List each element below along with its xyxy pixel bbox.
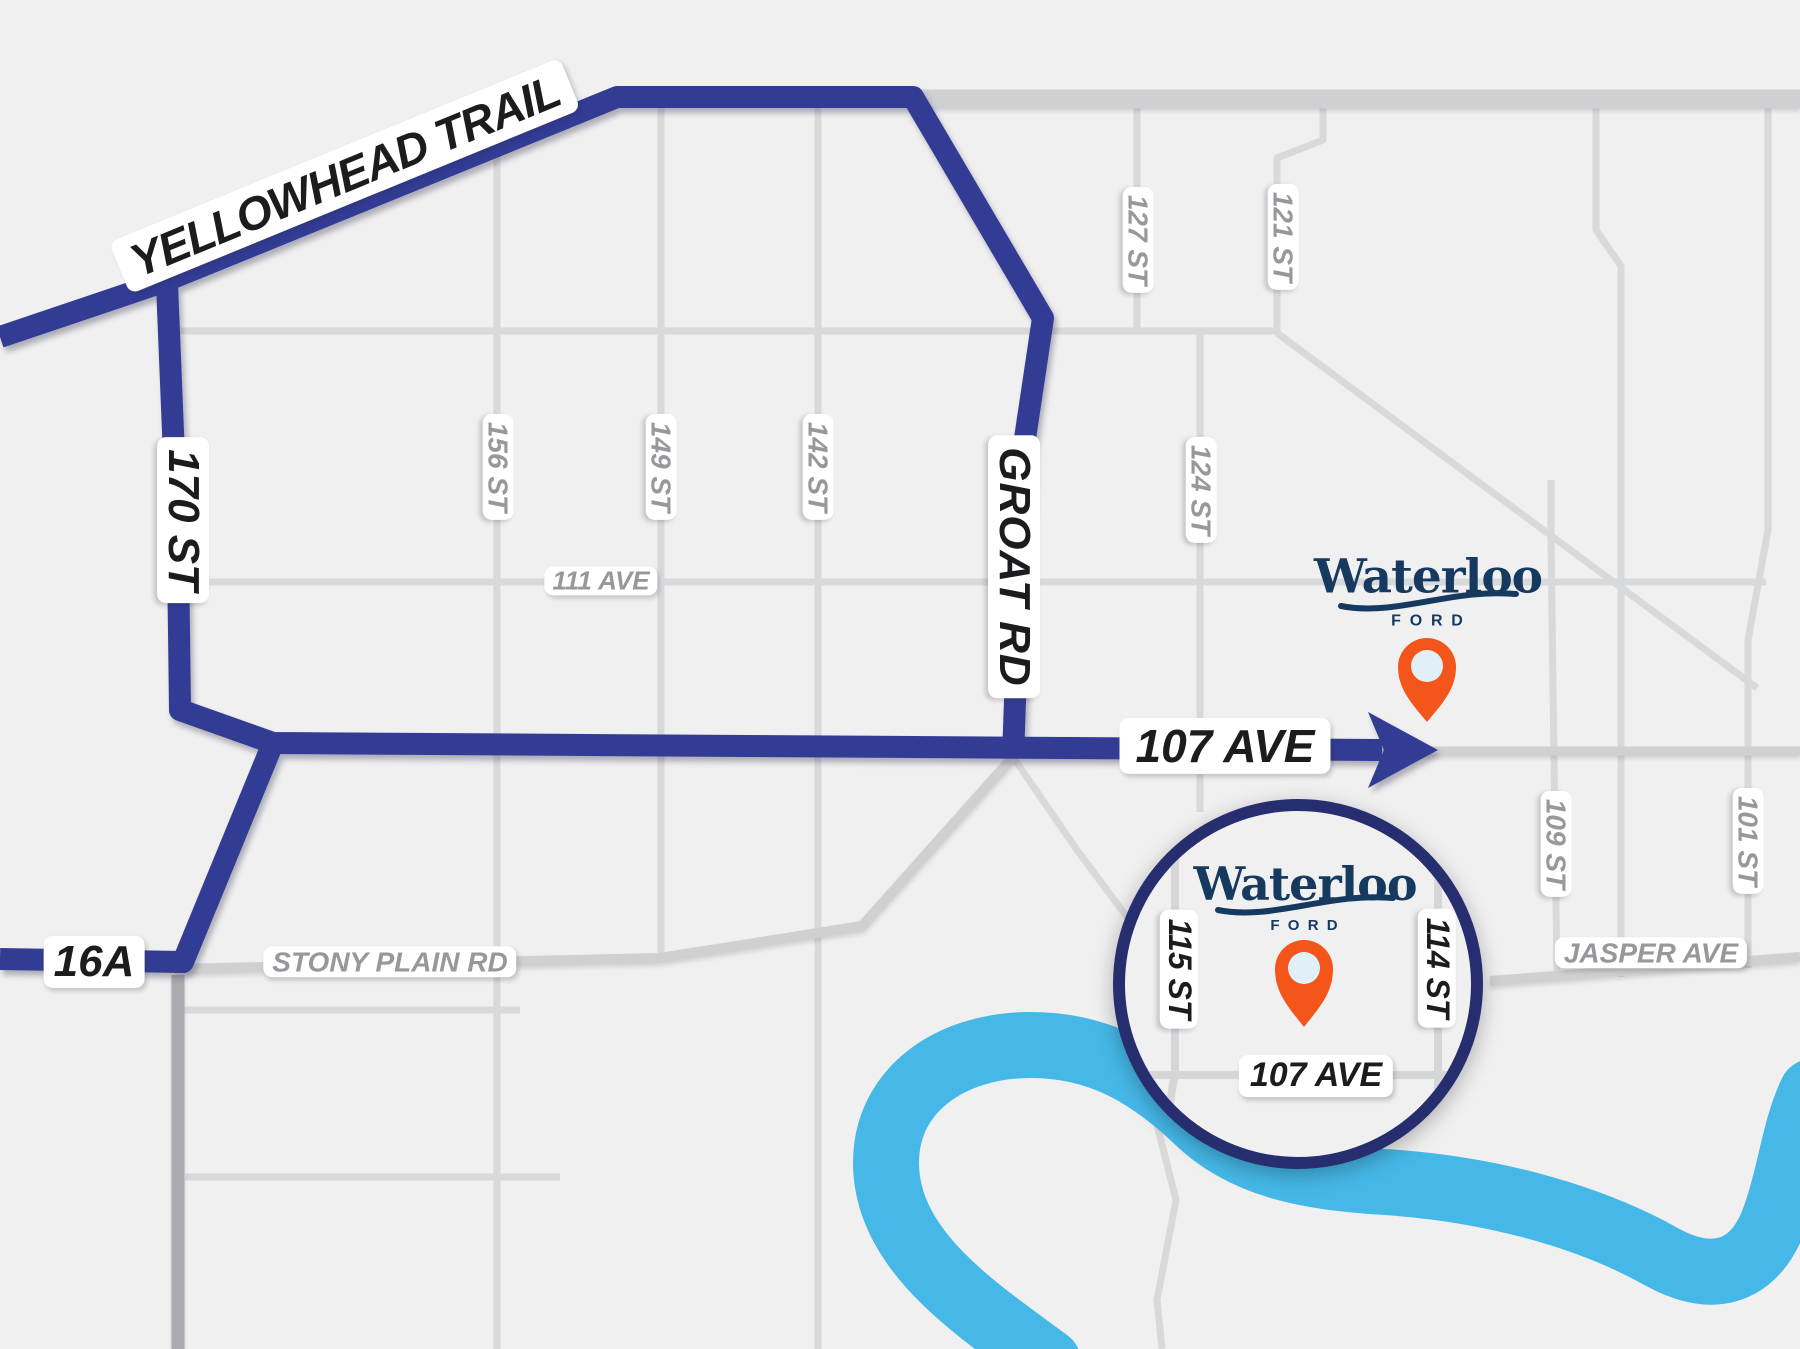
- label-101-st: 101 ST: [1732, 788, 1763, 894]
- label-107-ave: 107 AVE: [1120, 718, 1331, 774]
- road-109-st: [1551, 480, 1557, 977]
- inset-label-107-ave: 107 AVE: [1239, 1055, 1393, 1097]
- inset-label-114-st: 114 ST: [1418, 909, 1456, 1028]
- location-pin-main: [1398, 638, 1456, 722]
- label-121-st: 121 ST: [1267, 184, 1298, 290]
- label-170-st: 170 ST: [157, 437, 209, 603]
- inset-brand-wordmark: Waterloo: [1193, 860, 1416, 908]
- label-149-st: 149 ST: [645, 414, 676, 520]
- brand-wordmark: Waterloo: [1314, 552, 1542, 601]
- inset-brand-division: FORD: [1262, 918, 1346, 934]
- brand-division: FORD: [1382, 614, 1471, 631]
- road-vertical-mid: [1596, 107, 1621, 977]
- pin-hole: [1411, 650, 1443, 682]
- minor-roads: [178, 100, 1768, 1349]
- road-stony-plain: [175, 757, 1013, 969]
- label-124-st: 124 ST: [1185, 437, 1216, 543]
- road-diagonal-121: [1277, 333, 1757, 688]
- map-canvas: YELLOWHEAD TRAIL 170 ST GROAT RD 107 AVE…: [0, 0, 1800, 1349]
- label-111-ave: 111 AVE: [544, 566, 657, 595]
- label-127-st: 127 ST: [1122, 187, 1153, 293]
- label-16a: 16A: [44, 936, 145, 988]
- label-groat-rd: GROAT RD: [988, 435, 1040, 698]
- road-diagonal-victoria: [1013, 757, 1127, 917]
- label-stony-plain-rd: STONY PLAIN RD: [263, 946, 516, 977]
- label-142-st: 142 ST: [802, 414, 833, 520]
- label-156-st: 156 ST: [482, 414, 513, 520]
- label-jasper-ave: JASPER AVE: [1555, 937, 1747, 968]
- inset-pin-hole: [1288, 952, 1320, 984]
- route-yellowhead-groat: [0, 97, 1043, 757]
- route-16a: [0, 743, 273, 962]
- inset-label-115-st: 115 ST: [1160, 910, 1198, 1029]
- label-109-st: 109 ST: [1540, 791, 1571, 897]
